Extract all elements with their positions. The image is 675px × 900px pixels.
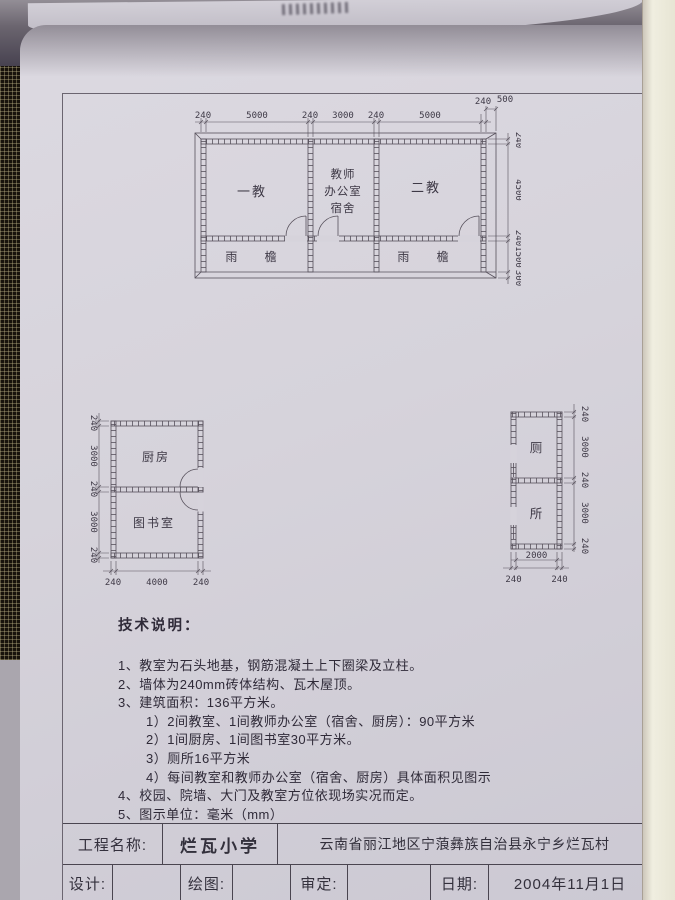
dim-label: 240 [513, 132, 521, 148]
dim-label: 3000 [88, 511, 98, 533]
dim-label: 240 [579, 472, 589, 488]
photograph-of-drawing-sheet: 240 5000 240 3000 240 5000 240 500 240 4… [0, 0, 675, 900]
dim-label: 4500 [513, 179, 521, 201]
note-subitem: 3）厕所16平方米 [118, 750, 618, 769]
main-building-floor-plan: 240 5000 240 3000 240 5000 240 500 240 4… [171, 94, 521, 286]
window-frame-edge [642, 0, 675, 900]
note-subitem: 1）2间教室、1间教师办公室（宿舍、厨房）：90平方米 [118, 713, 618, 732]
room-label-eave-right: 雨 檐 [397, 250, 460, 264]
room-label-office-3: 宿舍 [331, 201, 356, 215]
dim-label: 240 [368, 111, 384, 121]
dim-label: 240 [551, 575, 567, 585]
project-name-label: 工程名称: [63, 824, 163, 864]
wall-bottom [511, 544, 562, 549]
wall-left [111, 421, 116, 558]
wall-top [201, 139, 486, 144]
room-label-eave-left: 雨 檐 [225, 250, 288, 264]
dim-label-overhang: 500 [497, 95, 513, 105]
note-item: 3、建筑面积：136平方米。 [118, 694, 618, 713]
room-label-toilet-char1: 厕 [530, 441, 545, 455]
dim-label: 240 [579, 538, 589, 554]
dim-label: 240 [88, 415, 98, 431]
room-label-classroom1: 一教 [237, 184, 267, 199]
room-label-toilet-char2: 所 [530, 507, 545, 521]
project-name-value: 烂瓦小学 [163, 824, 278, 864]
date-label: 日期: [431, 865, 489, 900]
dim-label: 240 [105, 578, 121, 588]
wall-mid [111, 487, 203, 492]
wall-top [511, 412, 562, 417]
room-label-classroom2: 二教 [411, 180, 441, 195]
wall-bottom [201, 236, 486, 241]
draftsman-value [233, 865, 291, 900]
designer-value [113, 865, 181, 900]
dim-label: 240 [579, 406, 589, 422]
dim-label: 3000 [579, 502, 589, 524]
dim-label-inner-width: 2000 [526, 551, 548, 561]
room-label-kitchen: 厨房 [142, 449, 170, 464]
wall-mid-left [308, 139, 313, 272]
dim-label: 240 [193, 578, 209, 588]
note-item: 4、校园、院墙、大门及教室方位依现场实况而定。 [118, 787, 618, 806]
wall-right [557, 412, 562, 549]
dim-label: 3000 [579, 436, 589, 458]
wall-top [111, 421, 203, 426]
door-arc-library [180, 492, 198, 510]
technical-notes: 技术说明： 1、教室为石头地基，钢筋混凝土上下圈梁及立柱。 2、墙体为240mm… [118, 614, 618, 824]
dim-label: 240 [88, 481, 98, 497]
dim-label: 240 [513, 230, 521, 246]
wall-mid-right [374, 139, 379, 272]
wall-bottom [111, 553, 203, 558]
dim-label: 240 [195, 111, 211, 121]
door-arc-kitchen [180, 469, 198, 487]
dim-label: 240 [475, 97, 491, 107]
room-label-office-2: 办公室 [324, 184, 362, 198]
dim-label: 5000 [246, 111, 268, 121]
room-label-office-1: 教师 [331, 167, 356, 181]
reviewer-label: 审定: [291, 865, 348, 900]
drawing-paper-sheet: 240 5000 240 3000 240 5000 240 500 240 4… [20, 25, 658, 900]
dim-label: 240 [302, 111, 318, 121]
door-arc-classroom1 [286, 216, 306, 236]
dim-label: 5000 [419, 111, 441, 121]
note-subitem: 2）1间厨房、1间图书室30平方米。 [118, 731, 618, 750]
dim-label: 3000 [88, 445, 98, 467]
room-label-library: 图书室 [133, 515, 175, 530]
dim-label: 240 [88, 547, 98, 563]
dim-label: 1500 [513, 246, 521, 268]
dim-label: 4000 [146, 578, 168, 588]
reviewer-value [348, 865, 431, 900]
annex-floor-plan: 240 3000 240 3000 240 240 4000 240 厨房 图书… [79, 401, 219, 596]
designer-label: 设计: [63, 865, 113, 900]
door-arc-classroom2 [459, 216, 479, 236]
door-arc-office [318, 216, 338, 236]
dim-label: 3000 [332, 111, 354, 121]
wall-mid [511, 478, 562, 483]
project-location: 云南省丽江地区宁蒗彝族自治县永宁乡烂瓦村 [278, 824, 651, 864]
dim-label: 240 [505, 575, 521, 585]
title-block: 工程名称: 烂瓦小学 云南省丽江地区宁蒗彝族自治县永宁乡烂瓦村 设计: 绘图: … [63, 823, 651, 900]
note-subitem: 4）每间教室和教师办公室（宿舍、厨房）具体面积见图示 [118, 769, 618, 788]
note-item: 2、墙体为240mm砖体结构、瓦木屋顶。 [118, 676, 618, 695]
date-value: 2004年11月1日 [489, 865, 651, 900]
draftsman-label: 绘图: [181, 865, 233, 900]
wall-right [198, 421, 203, 558]
dim-label: 300 [513, 270, 521, 286]
note-item: 1、教室为石头地基，钢筋混凝土上下圈梁及立柱。 [118, 657, 618, 676]
wall-left [201, 139, 206, 272]
note-item: 5、图示单位：毫米（mm） [118, 806, 618, 825]
drawing-border-frame: 240 5000 240 3000 240 5000 240 500 240 4… [62, 93, 652, 900]
wall-right [481, 139, 486, 272]
page-curl-shadow [20, 25, 658, 77]
toilet-floor-plan: 240 3000 240 3000 240 2000 240 240 厕 所 [489, 384, 609, 594]
notes-heading: 技术说明： [118, 614, 618, 635]
